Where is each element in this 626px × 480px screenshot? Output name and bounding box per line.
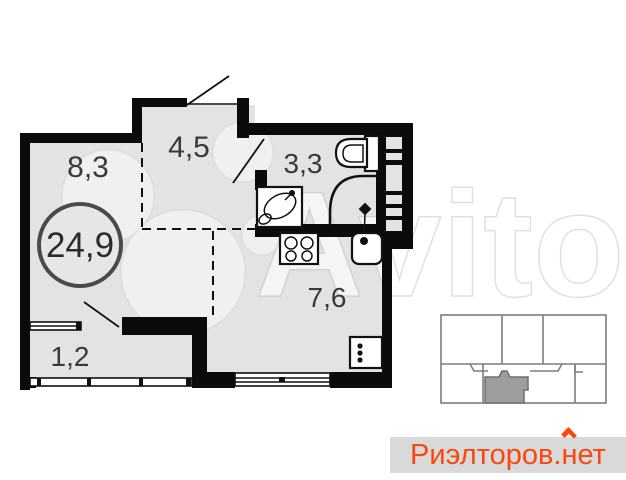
wall-top-living: [20, 133, 142, 143]
bathroom-area-label: 3,3: [284, 148, 323, 179]
total-area-label: 24,9: [46, 226, 114, 265]
floorplan-svg: Avito: [0, 0, 626, 480]
floorplan-image: Avito: [0, 0, 626, 480]
balcony-area-label: 1,2: [51, 341, 90, 372]
wall-step-down: [192, 335, 207, 372]
wall-living-balcony: [122, 317, 207, 335]
house-letter: н: [561, 437, 577, 473]
avito-logo-circle: [121, 210, 245, 334]
wall-bottom-right-part: [330, 372, 392, 388]
wall-bottom-left-part: [192, 372, 235, 388]
kitchen-sink-icon: [352, 233, 382, 264]
balcony-block-window: [30, 322, 81, 330]
living-room-area-label: 8,3: [67, 151, 109, 184]
wall-entry-top: [132, 98, 187, 107]
wall-left: [20, 133, 30, 390]
hallway-area-label: 4,5: [168, 131, 210, 164]
realtorov-net-watermark: Риэлторов.нет: [390, 437, 626, 473]
entrance-door-leaf: [187, 76, 229, 105]
balcony-glazing: [30, 378, 192, 386]
realtor-rest: ет: [578, 437, 606, 473]
realtor-prefix: Риэлторов.: [410, 437, 561, 473]
kitchen-window: [235, 373, 330, 386]
kitchen-area-label: 7,6: [308, 282, 347, 313]
toilet-icon: [336, 136, 379, 171]
vent-shaft: [376, 127, 406, 249]
stove-icon: [280, 233, 318, 264]
washbasin-icon: [257, 187, 302, 227]
minimap: [441, 315, 606, 403]
riser-box-icon: [350, 337, 382, 368]
wall-kitchen-right: [382, 240, 392, 388]
total-area-circle: 24,9: [39, 204, 121, 286]
